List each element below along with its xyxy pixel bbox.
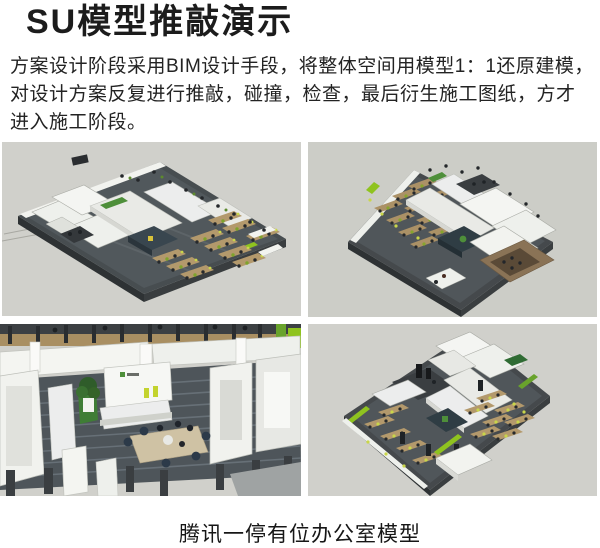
model-image-bottom-left [0,324,301,496]
model-image-top-right [308,142,597,317]
isometric-office-model-overview-rotated [308,324,597,496]
page: SU模型推敲演示 方案设计阶段采用BIM设计手段，将整体空间用模型1：1还原建模… [0,0,600,546]
model-image-grid [0,0,600,546]
model-caption: 腾讯一停有位办公室模型 [0,518,600,548]
office-model-interior-reception-view [0,324,301,496]
isometric-office-model-overview-left [2,142,301,316]
model-image-bottom-right [308,324,597,496]
isometric-office-model-overview-right [308,142,597,317]
model-image-top-left [2,142,301,316]
